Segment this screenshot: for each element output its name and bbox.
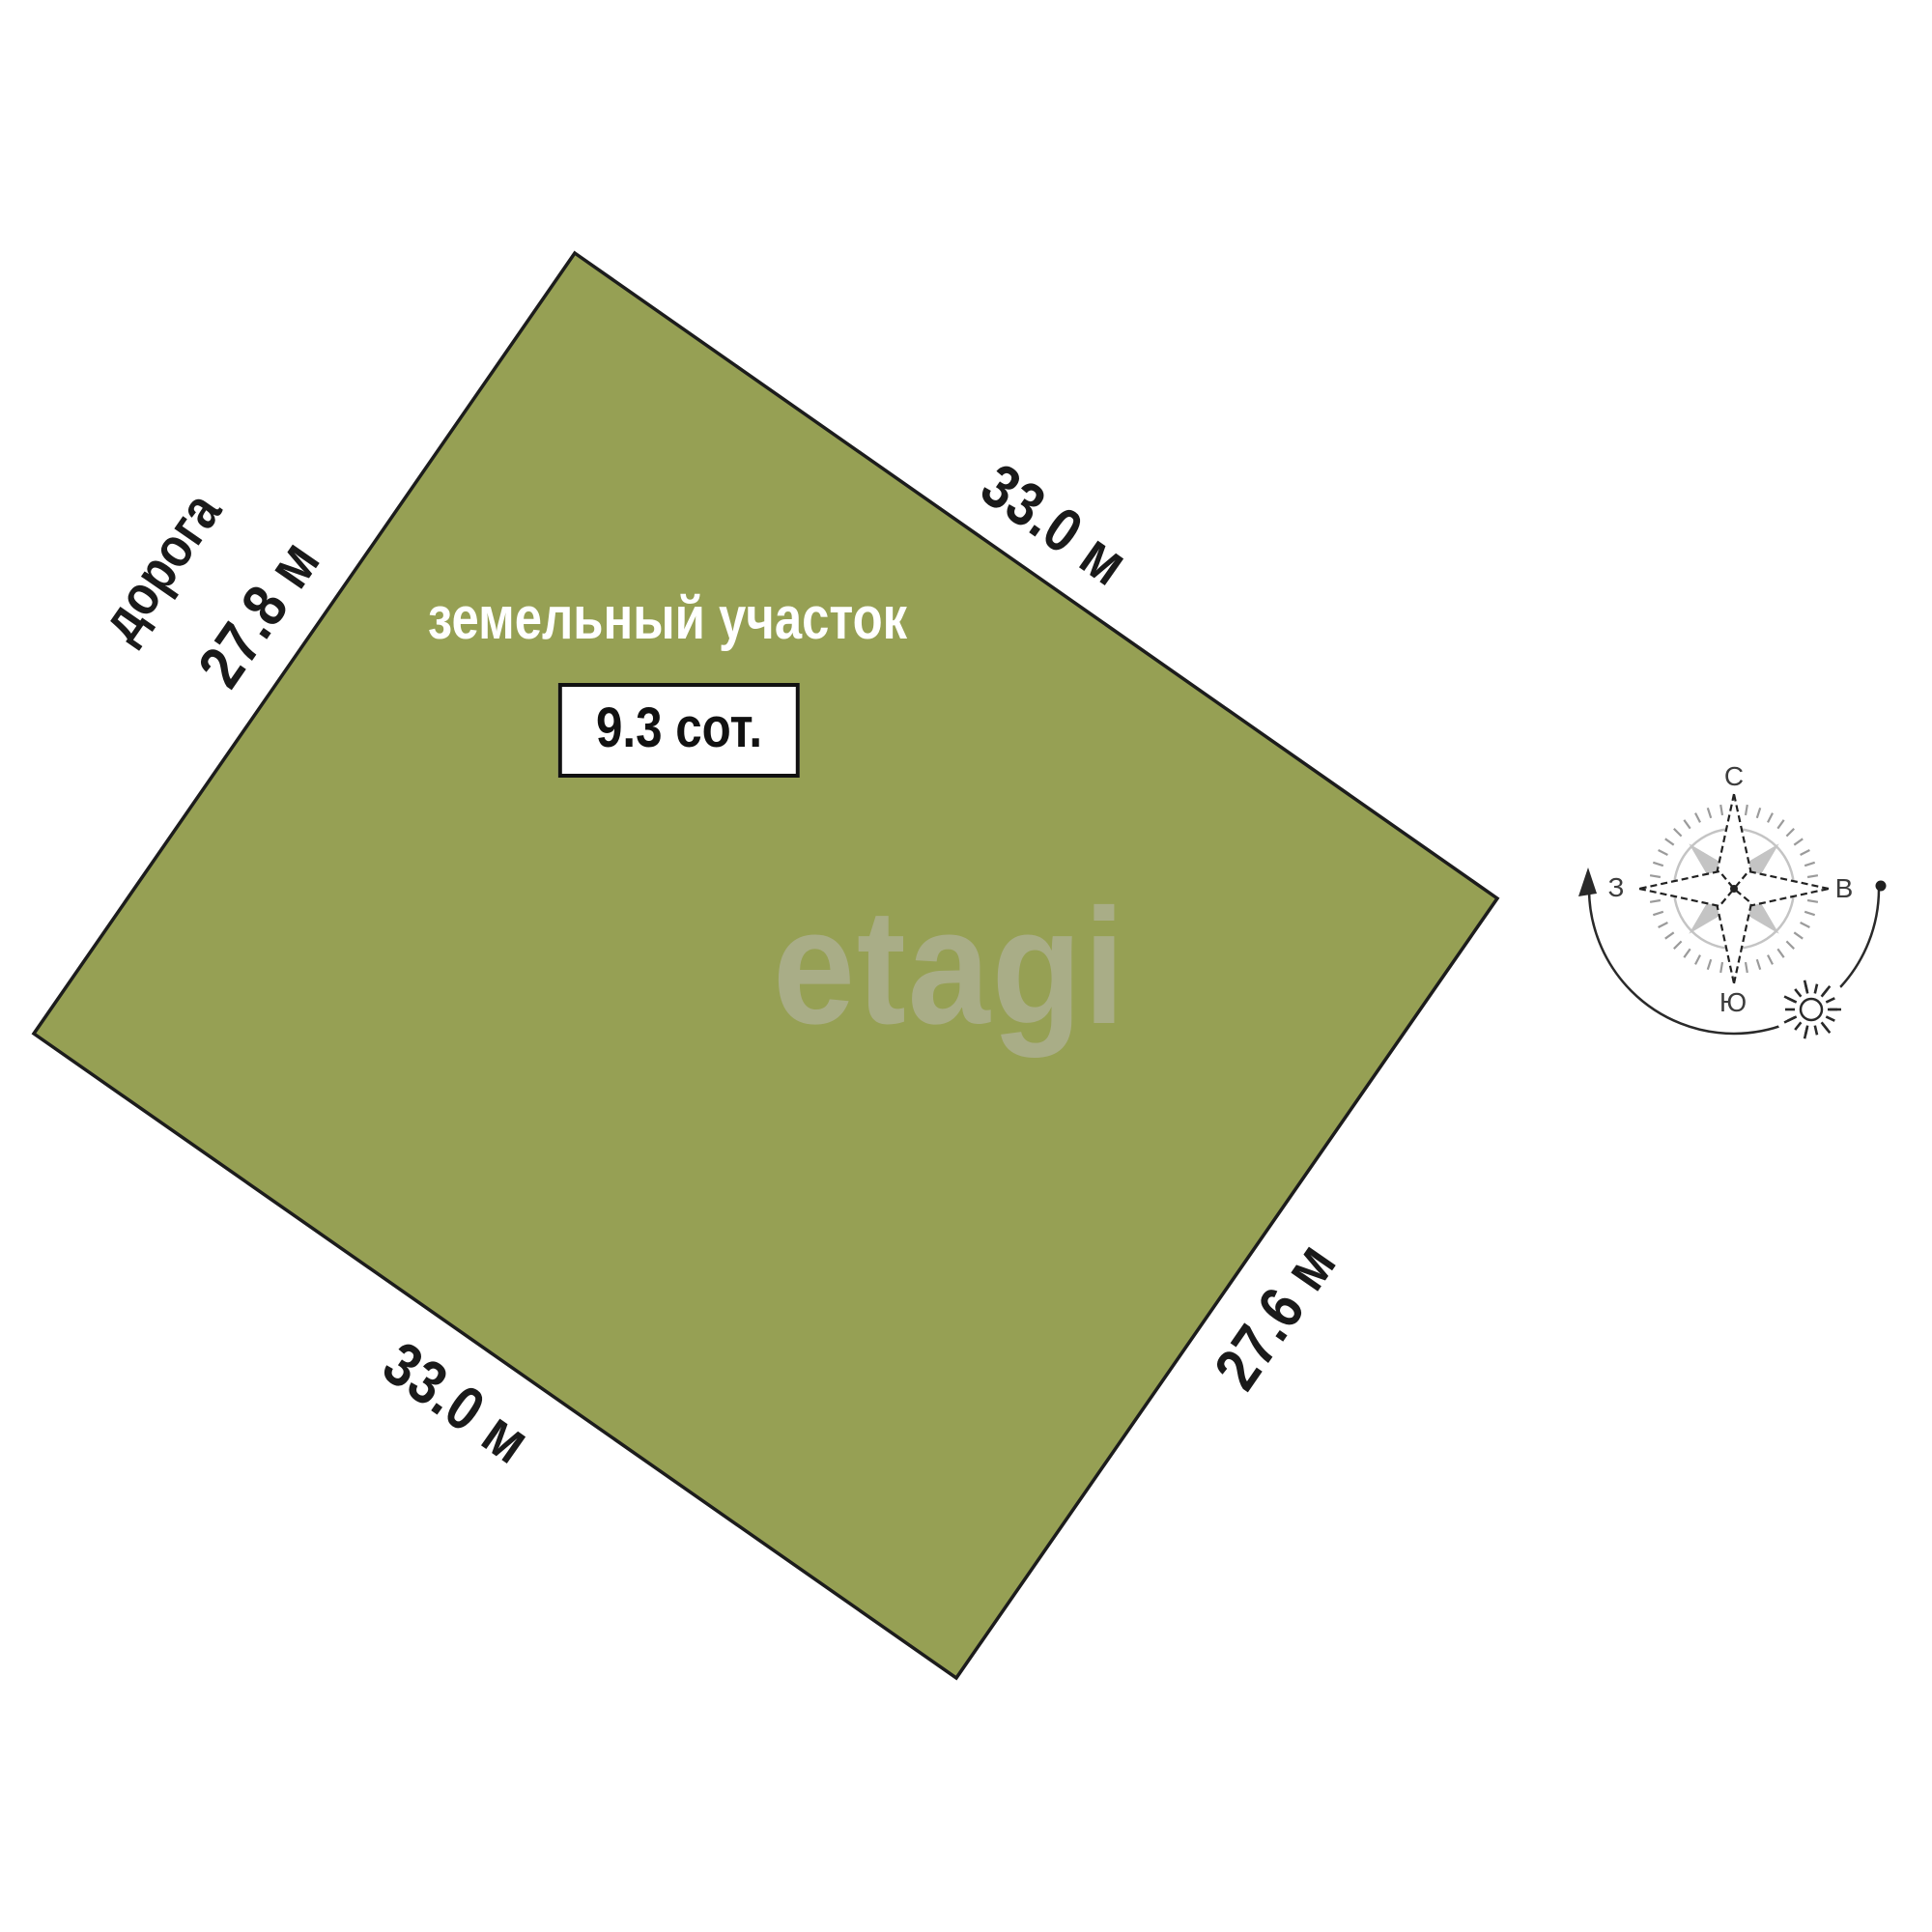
sun-path-arrow-icon xyxy=(1578,867,1597,896)
compass-west-label: З xyxy=(1608,874,1625,901)
plot-name-label: земельный участок xyxy=(428,589,907,649)
compass-north-label: С xyxy=(1724,763,1744,790)
plot-area-box: 9.3 сот. xyxy=(558,683,800,778)
plot-area-value: 9.3 сот. xyxy=(596,700,762,756)
compass-center-dot xyxy=(1730,885,1738,893)
land-plot-diagram: etagi земельный участок 9.3 сот. 33.0 м … xyxy=(0,0,1932,1932)
compass-east-label: В xyxy=(1835,875,1854,902)
watermark: etagi xyxy=(773,885,1126,1049)
sunrise-dot-icon xyxy=(1876,881,1887,892)
land-parcel-shape xyxy=(34,253,1497,1678)
compass-south-label: Ю xyxy=(1719,989,1747,1016)
sun-icon xyxy=(1775,973,1848,1046)
